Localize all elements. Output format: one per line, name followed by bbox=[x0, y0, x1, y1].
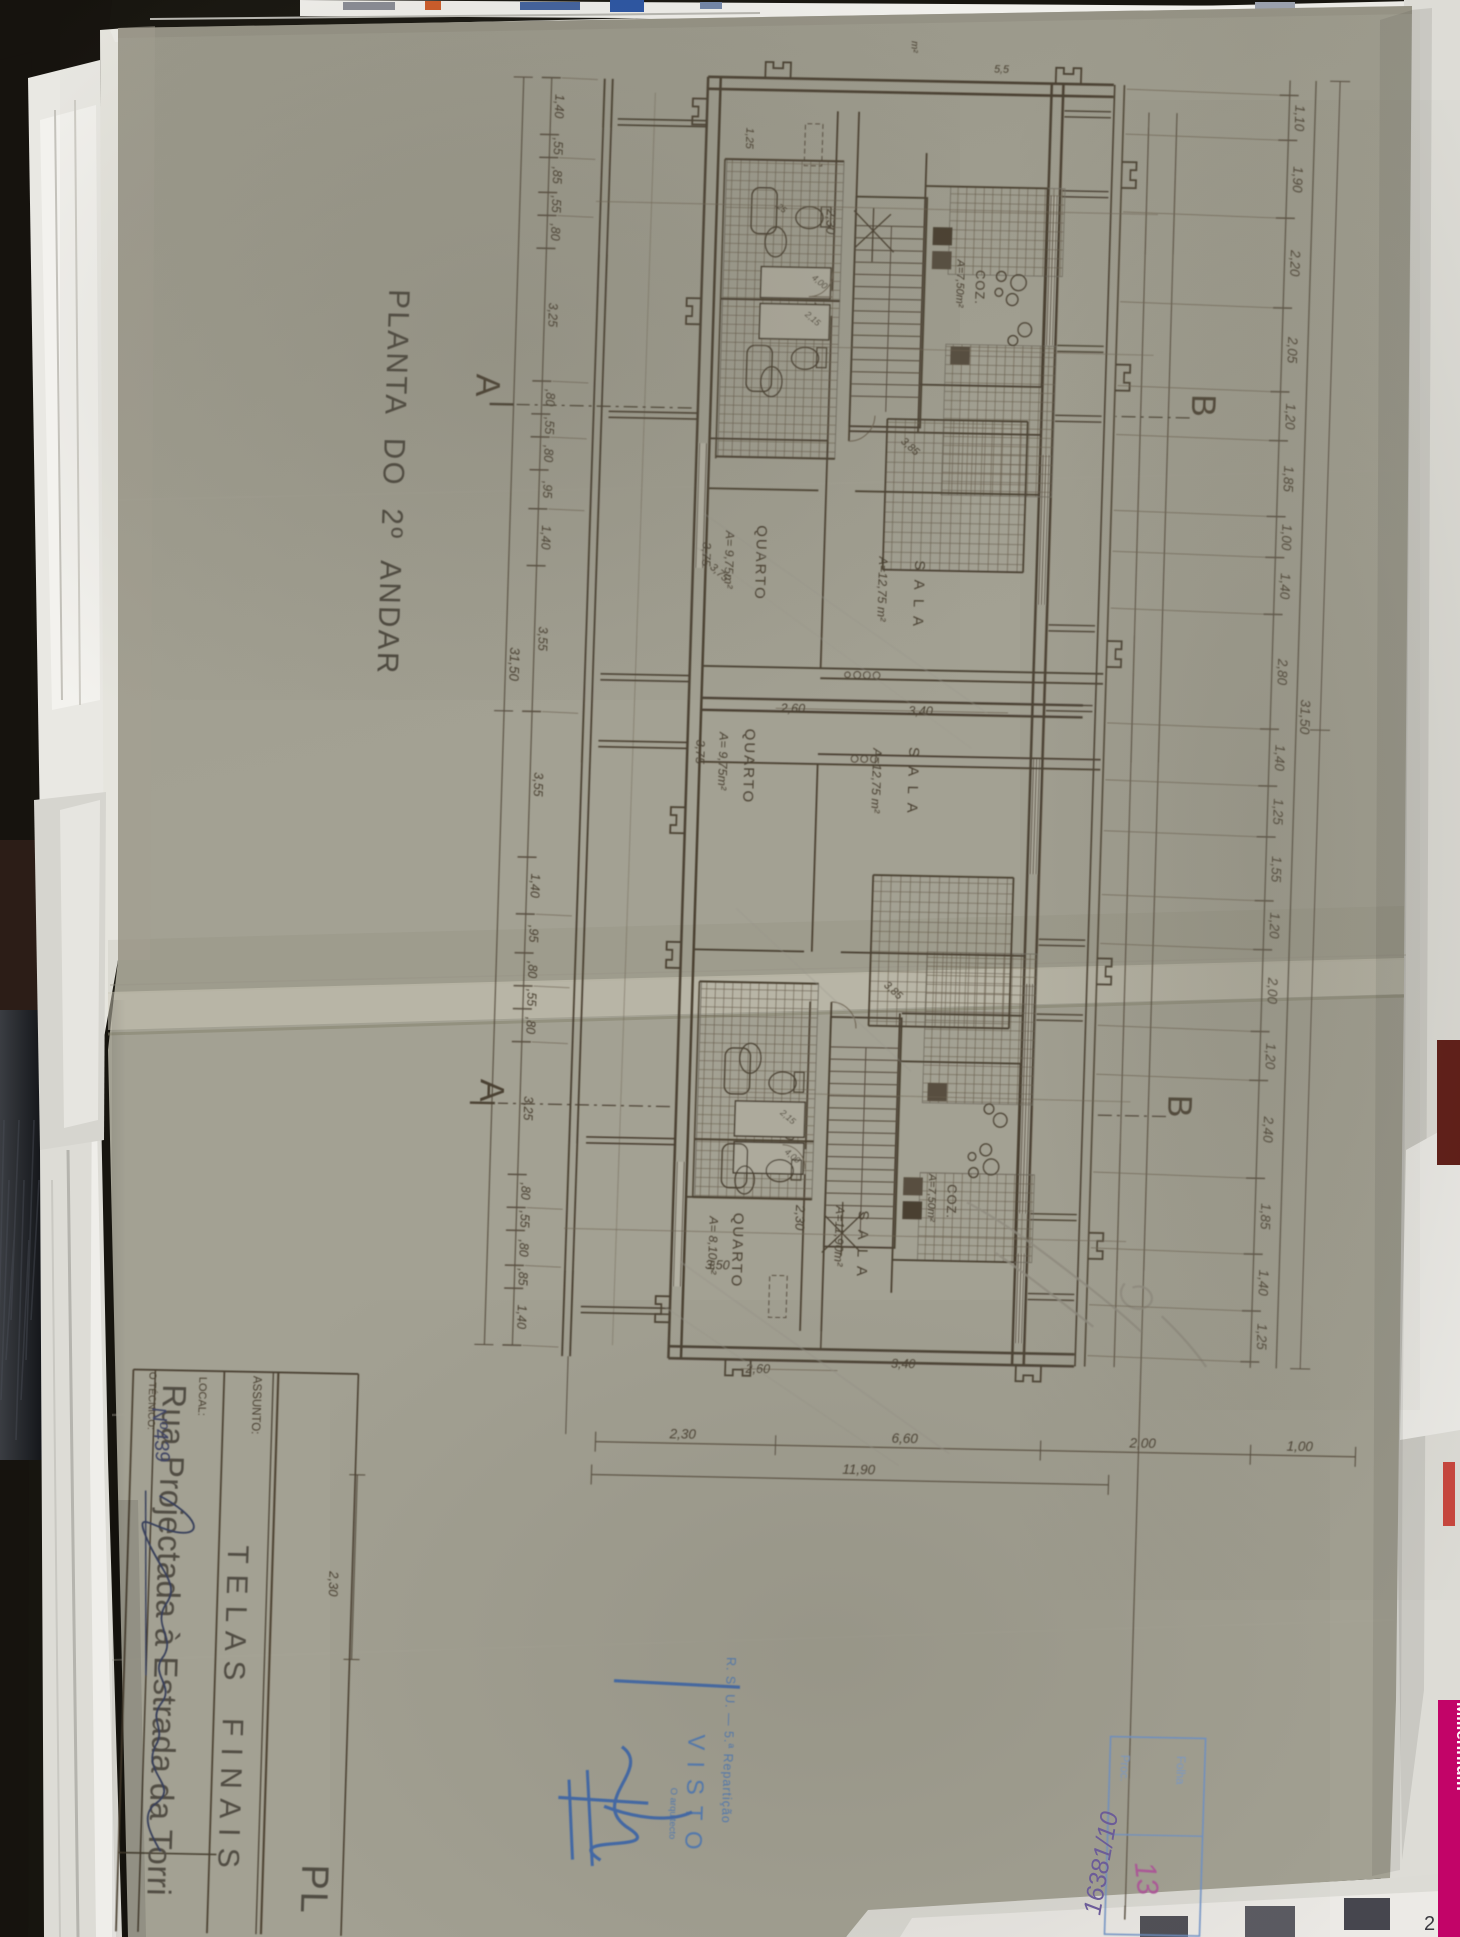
svg-text:A=12,75 m²: A=12,75 m² bbox=[868, 747, 884, 814]
svg-text:QUARTO: QUARTO bbox=[739, 729, 757, 805]
svg-text:COZ.: COZ. bbox=[944, 1184, 960, 1219]
svg-text:1,40: 1,40 bbox=[527, 873, 542, 898]
svg-text:ASSUNTO:: ASSUNTO: bbox=[248, 1376, 262, 1435]
svg-text:,80: ,80 bbox=[523, 1017, 538, 1035]
svg-text:3,25: 3,25 bbox=[520, 1096, 535, 1121]
svg-text:,80: ,80 bbox=[516, 1239, 531, 1257]
svg-text:LOCAL:: LOCAL: bbox=[195, 1377, 208, 1416]
svg-text:S A L A: S A L A bbox=[903, 747, 921, 816]
svg-text:,95: ,95 bbox=[526, 925, 541, 943]
svg-text:2,60: 2,60 bbox=[779, 700, 805, 716]
svg-text:A: A bbox=[472, 1079, 511, 1103]
svg-text:3,75: 3,75 bbox=[693, 740, 708, 765]
svg-text:PL: PL bbox=[292, 1864, 336, 1915]
svg-text:S A L A: S A L A bbox=[853, 1210, 871, 1279]
svg-text:2: 2 bbox=[1424, 1913, 1435, 1935]
svg-text:A= 9,75m²: A= 9,75m² bbox=[715, 731, 731, 791]
svg-text:COZ.: COZ. bbox=[972, 270, 988, 305]
svg-text:Millennium: Millennium bbox=[1453, 1702, 1460, 1791]
svg-text:5,5: 5,5 bbox=[994, 63, 1010, 75]
svg-text:A=11,90m²: A=11,90m² bbox=[831, 1205, 847, 1268]
svg-text:,80: ,80 bbox=[525, 961, 540, 979]
svg-text:,85: ,85 bbox=[515, 1268, 530, 1286]
svg-text:,55: ,55 bbox=[524, 989, 539, 1007]
svg-text:3,50: 3,50 bbox=[705, 1257, 730, 1273]
svg-text:A=7,50m²: A=7,50m² bbox=[924, 1173, 937, 1222]
svg-text:3,55: 3,55 bbox=[530, 772, 545, 797]
svg-text:2,30: 2,30 bbox=[792, 1204, 808, 1231]
svg-text:,55: ,55 bbox=[517, 1210, 532, 1228]
svg-text:Nº439: Nº439 bbox=[147, 1406, 173, 1463]
svg-text:QUARTO: QUARTO bbox=[728, 1213, 746, 1289]
svg-text:,80: ,80 bbox=[518, 1182, 533, 1200]
